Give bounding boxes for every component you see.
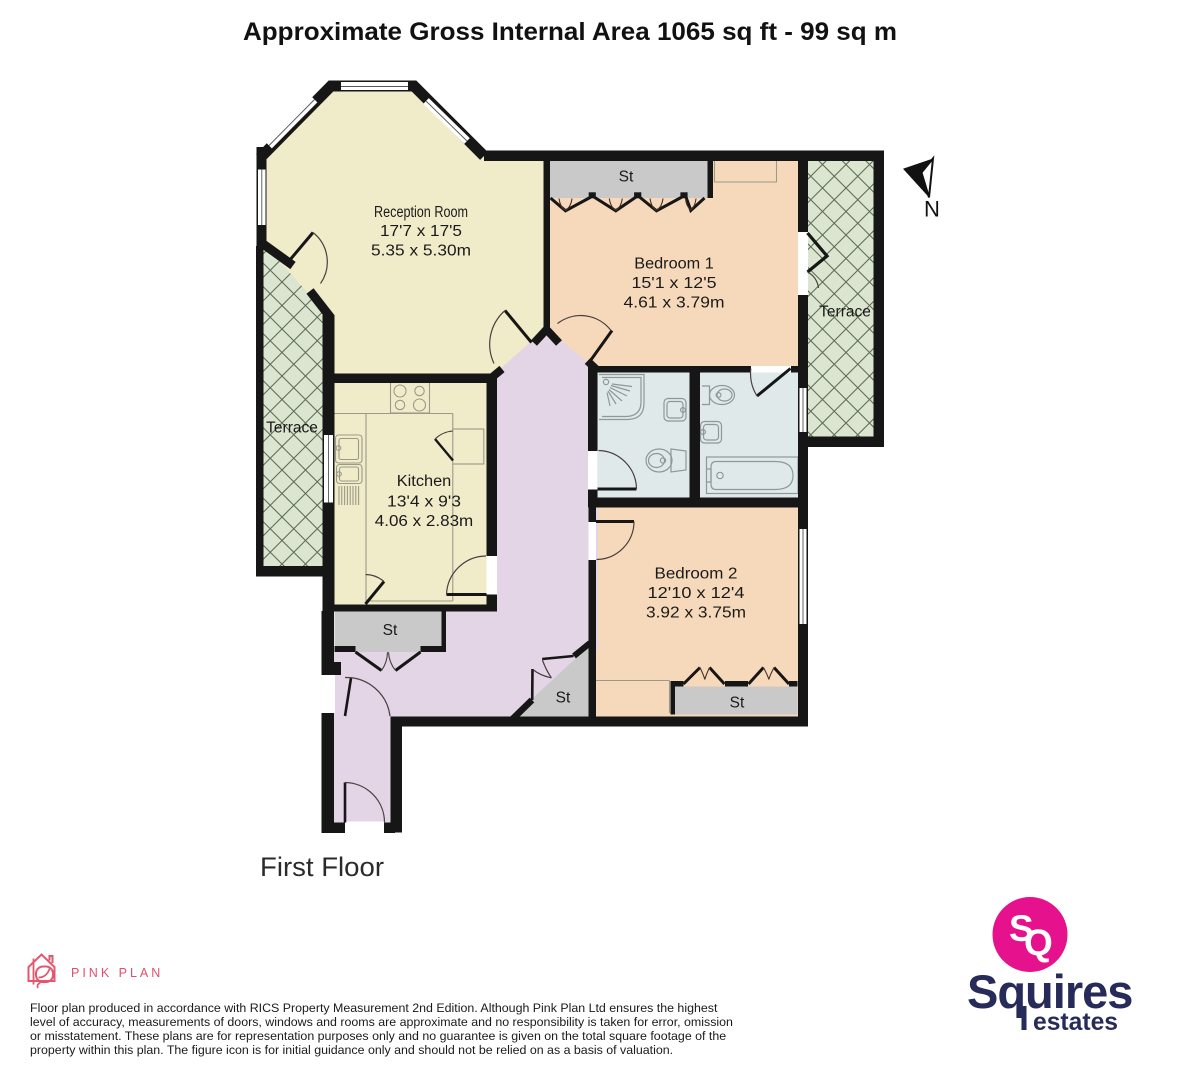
svg-text:Terrace: Terrace [819, 304, 871, 321]
svg-text:First Floor: First Floor [260, 852, 384, 882]
svg-text:Floor plan produced in accorda: Floor plan produced in accordance with R… [30, 1001, 718, 1015]
svg-text:or misstatement. These plans a: or misstatement. These plans are for rep… [30, 1029, 726, 1043]
svg-text:St: St [556, 690, 571, 707]
svg-text:level of accuracy, measurement: level of accuracy, measurements of doors… [30, 1015, 733, 1029]
svg-text:17'7 x 17'5: 17'7 x 17'5 [380, 223, 462, 240]
svg-text:Bedroom 2: Bedroom 2 [655, 566, 738, 583]
svg-text:St: St [619, 169, 634, 186]
svg-text:15'1 x 12'5: 15'1 x 12'5 [632, 275, 717, 292]
svg-text:Terrace: Terrace [266, 420, 318, 437]
svg-text:Approximate Gross Internal Are: Approximate Gross Internal Area 1065 sq … [243, 18, 897, 46]
svg-text:4.61 x 3.79m: 4.61 x 3.79m [624, 295, 725, 312]
svg-text:Kitchen: Kitchen [397, 473, 452, 490]
svg-text:4.06 x 2.83m: 4.06 x 2.83m [375, 513, 474, 530]
svg-text:Reception Room: Reception Room [374, 204, 468, 221]
svg-text:Bedroom 1: Bedroom 1 [634, 256, 714, 273]
svg-text:13'4 x 9'3: 13'4 x 9'3 [387, 494, 461, 511]
svg-text:12'10 x 12'4: 12'10 x 12'4 [648, 585, 745, 602]
svg-text:St: St [383, 622, 398, 639]
svg-text:5.35 x 5.30m: 5.35 x 5.30m [371, 243, 471, 260]
svg-text:St: St [730, 695, 745, 712]
svg-text:estates: estates [1033, 1008, 1118, 1036]
svg-text:N: N [924, 197, 940, 222]
svg-text:property within this plan. The: property within this plan. The figure ic… [30, 1043, 673, 1057]
svg-text:3.92 x 3.75m: 3.92 x 3.75m [646, 605, 746, 622]
svg-text:PINK PLAN: PINK PLAN [71, 966, 163, 980]
svg-text:Q: Q [1024, 922, 1053, 963]
